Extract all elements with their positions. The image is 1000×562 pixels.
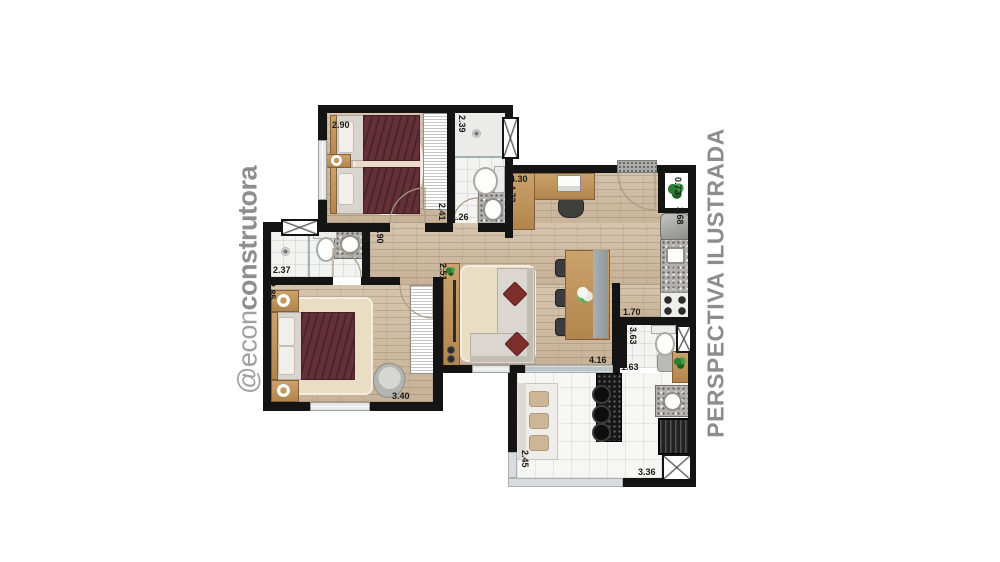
wall-segment [508, 373, 517, 452]
dimension-label-3-36: 3.36 [638, 468, 656, 478]
wall-segment [318, 105, 513, 113]
floor-plan-image: @econconstrutora PERSPECTIVA ILUSTRADA [0, 0, 1000, 562]
bedroom2-door-arc [390, 188, 425, 223]
wall-segment [620, 317, 688, 325]
apartment-floor-plan: 2.90 2.39 2.41 1.26 0.90 1.21 2.37 2.85 … [263, 105, 696, 487]
bathroom1-window-box [502, 117, 519, 159]
bedroom2-window [318, 140, 327, 200]
wall-segment [443, 365, 472, 373]
wall-segment [505, 165, 618, 173]
dimension-label-1-63: 1.63 [621, 363, 639, 373]
perspective-caption: PERSPECTIVA ILUSTRADA [703, 128, 730, 438]
dimension-label-4-72: 4.72 [506, 185, 516, 203]
dimension-label-1-70: 1.70 [623, 308, 641, 318]
dimension-label-4-16: 4.16 [589, 356, 607, 366]
wall-segment [620, 317, 627, 368]
dimension-label-2-39: 2.39 [456, 115, 466, 133]
wall-segment [433, 277, 443, 410]
duct-shaft-bottom [662, 454, 692, 481]
wall-segment [612, 283, 620, 373]
brand-handle-suffix: construtora [233, 166, 263, 311]
wall-segment [478, 223, 513, 232]
dimension-label-1-26: 1.26 [451, 213, 469, 223]
master-door-arc [400, 285, 433, 318]
dimension-label-2-68: 2.68 [674, 207, 684, 225]
entry-door-arc [618, 173, 655, 210]
balcony-sliding-door [525, 365, 613, 373]
dimension-label-2-41: 2.41 [436, 203, 446, 221]
entry-doormat [617, 160, 657, 173]
dimension-label-2-51: 2.51 [437, 263, 447, 281]
wall-segment [370, 402, 443, 411]
bathroom2-window-box [281, 219, 319, 236]
brand-handle-prefix: @econ [233, 311, 263, 394]
dimension-label-3-63: 3.63 [627, 327, 637, 345]
dimension-label-2-45: 2.45 [519, 450, 529, 468]
wall-segment [361, 277, 400, 285]
duct-shaft-top [676, 325, 692, 353]
wall-segment [425, 223, 453, 232]
wall-segment [263, 222, 271, 410]
master-window [310, 402, 370, 411]
dimension-label-2-90: 2.90 [332, 121, 350, 131]
wall-segment [658, 165, 665, 213]
wall-segment [508, 365, 525, 373]
dimension-label-0-90: 0.90 [374, 226, 384, 244]
bathroom2-door-arc [333, 249, 361, 277]
dimension-label-3-40: 3.40 [392, 392, 410, 402]
dimension-label-2-85: 2.85 [266, 282, 276, 300]
balcony-glass-railing-left [508, 452, 517, 478]
wall-segment [263, 402, 310, 411]
living-window [472, 365, 510, 373]
dimension-label-4-30: 4.30 [510, 175, 528, 185]
dimension-label-2-37: 2.37 [273, 266, 291, 276]
wall-segment [447, 105, 455, 223]
dimension-label-0-73: 0.73 [672, 177, 682, 195]
balcony-glass-railing-bottom [508, 478, 623, 487]
dimension-label-1-21: 1.21 [360, 226, 370, 244]
brand-watermark: @econconstrutora [233, 166, 264, 394]
